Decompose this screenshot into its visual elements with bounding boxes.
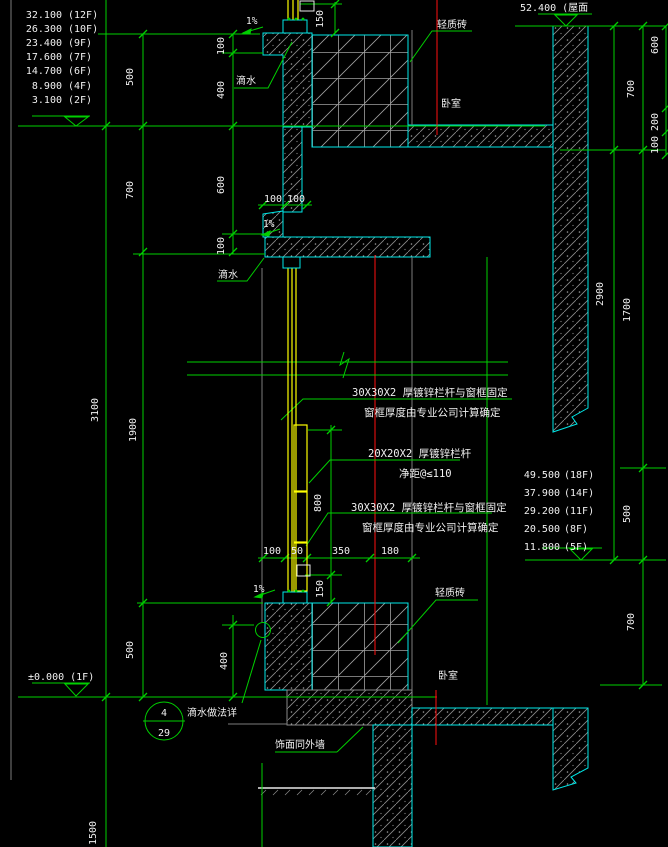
slope-arrow-top (243, 29, 251, 34)
slope-label-bottom: 1% (253, 584, 265, 595)
ground-line (258, 788, 375, 795)
wall-right-upper (553, 26, 588, 432)
leader-finish-note (337, 727, 363, 752)
dim-label: 1700 (622, 298, 633, 322)
room-label-bedroom-lower: 卧室 (438, 669, 458, 682)
break-zigzag (340, 352, 349, 378)
level-floor: (6F) (68, 66, 92, 77)
dim-label: 150 (315, 580, 326, 598)
cad-wall-section-drawing: 32.100(12F) 26.300(10F) 23.400(9F) 17.60… (0, 0, 668, 847)
roof-level-label: 52.400 (屋面 (520, 2, 588, 14)
window-sill-block-bottom (283, 592, 307, 603)
level-floor: (18F) (564, 470, 594, 481)
dim-label: 1500 (88, 821, 99, 845)
brick-wall-top (312, 35, 408, 147)
right-elevation-list: 49.500(18F) 37.900(14F) 29.200(11F) 20.5… (524, 470, 594, 553)
dim-label: 700 (626, 613, 637, 631)
dim-label: 700 (626, 80, 637, 98)
dim-label: 2900 (595, 282, 606, 306)
window-sill-block-top (283, 20, 307, 33)
dim-label: 600 (650, 36, 661, 54)
dim-label: 400 (219, 652, 230, 670)
ground-level-label: ±0.000 (1F) (28, 672, 94, 683)
level-triangle-roof (555, 15, 577, 26)
dim-label: 200 (650, 113, 661, 131)
dim-label: 500 (125, 68, 136, 86)
level-triangle-2f (65, 117, 88, 126)
leader-drip-detail (242, 640, 261, 703)
dim-label: 180 (381, 546, 399, 557)
material-label-light-brick-bottom: 轻质砖 (435, 586, 465, 599)
annotation-railing-top-1: 30X30X2 厚镀锌栏杆与窗框固定 (352, 386, 508, 399)
level-value: 17.600 (26, 52, 62, 63)
level-triangle-1f (65, 684, 88, 696)
level-value: 3.100 (32, 95, 62, 106)
material-label-light-brick-top: 轻质砖 (437, 18, 467, 31)
brick-wall-bottom (312, 603, 408, 690)
room-label-bedroom-upper: 卧室 (441, 97, 461, 110)
slab-bottom-right (412, 708, 553, 725)
dim-label: 1900 (128, 418, 139, 442)
annotation-railing-mid-2: 净距@≤110 (399, 467, 452, 480)
level-floor: (9F) (68, 38, 92, 49)
dim-label: 350 (332, 546, 350, 557)
level-floor: (8F) (564, 524, 588, 535)
leader-light-brick-bottom (398, 600, 478, 643)
drip-label-mid: 滴水 (218, 268, 238, 281)
level-floor: (11F) (564, 506, 594, 517)
concrete-beam-top (263, 33, 312, 127)
level-value: 32.100 (26, 10, 62, 21)
level-floor: (10F) (68, 24, 98, 35)
dim-label: 700 (125, 181, 136, 199)
level-value: 49.500 (524, 470, 560, 481)
left-elevation-list: 32.100(12F) 26.300(10F) 23.400(9F) 17.60… (26, 10, 98, 106)
level-value: 23.400 (26, 38, 62, 49)
detail-callout-number: 4 (161, 708, 167, 719)
window-head-block-mid (283, 257, 300, 268)
drip-label-top: 滴水 (236, 74, 256, 87)
slab-mid (265, 237, 430, 257)
dim-label: 100 (264, 194, 282, 205)
annotation-railing-bottom-2: 窗框厚度由专业公司计算确定 (362, 521, 499, 534)
slab-top-right (408, 125, 553, 147)
dim-label: 50 (291, 546, 303, 557)
level-floor: (14F) (564, 488, 594, 499)
wall-right-lower (553, 708, 588, 790)
level-value: 29.200 (524, 506, 560, 517)
level-floor: (5F) (564, 542, 588, 553)
dim-label: 100 (650, 136, 661, 154)
dim-label: 600 (216, 176, 227, 194)
level-value: 26.300 (26, 24, 62, 35)
annotation-railing-bottom-1: 30X30X2 厚镀锌栏杆与窗框固定 (351, 501, 507, 514)
dim-label: 800 (313, 494, 324, 512)
level-floor: (7F) (68, 52, 92, 63)
dim-label: 3100 (90, 398, 101, 422)
level-value: 20.500 (524, 524, 560, 535)
dim-label: 100 (263, 546, 281, 557)
finish-note-label: 饰面同外墙 (275, 738, 325, 751)
level-value: 37.900 (524, 488, 560, 499)
slope-label-mid: 1% (263, 219, 275, 230)
concrete-sill-wall-bottom (265, 603, 312, 690)
wall-lower (373, 725, 412, 847)
level-floor: (2F) (68, 95, 92, 106)
annotation-railing-mid-1: 20X20X2 厚镀锌栏杆 (368, 447, 472, 460)
level-floor: (12F) (68, 10, 98, 21)
detail-callout-sheet: 29 (158, 728, 170, 739)
dim-label: 100 (287, 194, 305, 205)
dim-label: 100 (216, 237, 227, 255)
break-lines (187, 352, 508, 378)
dim-label: 400 (216, 81, 227, 99)
level-value: 8.900 (32, 81, 62, 92)
level-value: 14.700 (26, 66, 62, 77)
level-value: 11.800 (524, 542, 560, 553)
slope-label-top: 1% (246, 16, 258, 27)
section-drawing-svg: 32.100(12F) 26.300(10F) 23.400(9F) 17.60… (0, 0, 668, 847)
leader-light-brick-top (410, 31, 472, 62)
level-floor: (4F) (68, 81, 92, 92)
dim-label: 500 (622, 505, 633, 523)
dim-label: 100 (216, 37, 227, 55)
dim-label: 500 (125, 641, 136, 659)
concrete-band-bottom (287, 690, 412, 725)
annotation-railing-top-2: 窗框厚度由专业公司计算确定 (364, 406, 501, 419)
window-head-box-top (300, 1, 314, 11)
dim-label: 150 (315, 10, 326, 28)
drip-detail-note: 滴水做法详 (187, 706, 237, 719)
window-frame-box-bottom (297, 565, 310, 576)
wall-hatch-regions (263, 26, 588, 847)
